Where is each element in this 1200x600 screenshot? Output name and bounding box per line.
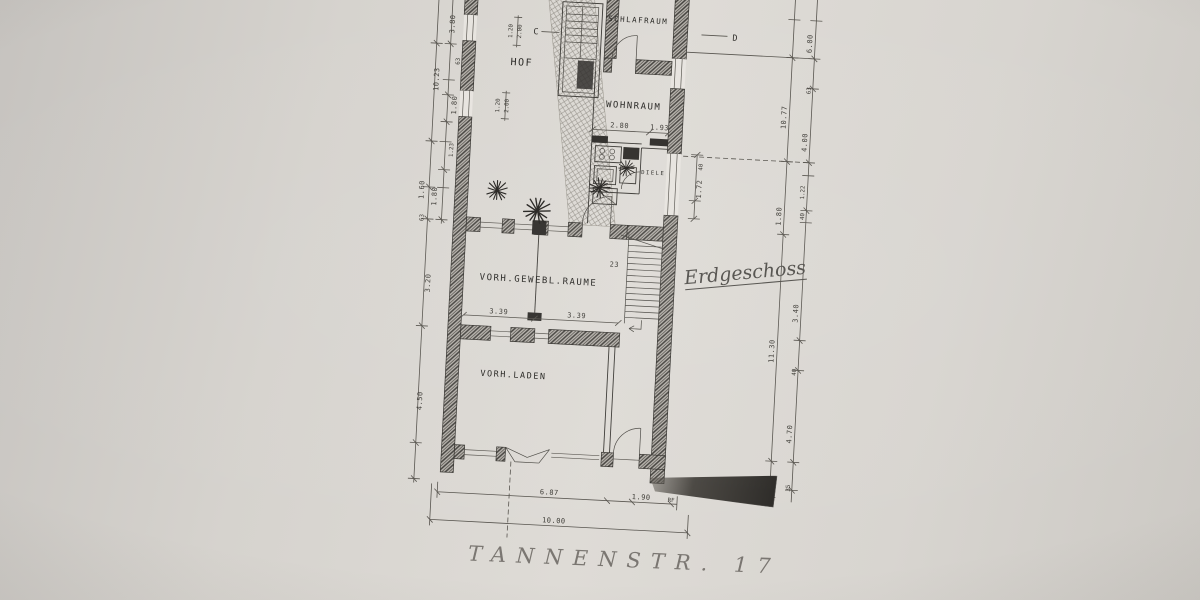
- window-dim-b: 1.72: [695, 179, 704, 198]
- wohnraum-label: WOHNRAUM: [606, 100, 662, 113]
- staircase-23: [616, 233, 665, 333]
- left-boundary-wall: [440, 0, 479, 473]
- left-dim-c: 63: [456, 57, 462, 65]
- gewerbl-dim-b: 3.39: [567, 311, 586, 320]
- wohnraum-dim-b: 1.93: [650, 123, 669, 132]
- left-dim-e: 1.23: [449, 142, 456, 157]
- window-dim: 40 1.72: [688, 152, 706, 223]
- left-dim-b: 10.23: [432, 67, 441, 91]
- section-c-label: C: [533, 27, 539, 37]
- right-inner-dim-a: 10.77: [780, 105, 789, 129]
- right-outer-dim-g: 40: [792, 368, 798, 376]
- gate1-dim-b: 2.00: [517, 24, 524, 39]
- gewerbl-top-wall: [466, 217, 663, 241]
- laden-label: VORH.LADEN: [480, 369, 547, 382]
- hof-label: HOF: [510, 57, 533, 69]
- right-outer-dim-h: 4.70: [785, 425, 794, 444]
- right-dim-chain: 10.77 1.80 11.30 6.00 63 4.00 1.22 40 3.…: [663, 0, 824, 503]
- gewerbl-label: VORH.GEWEBL.RAUME: [479, 273, 597, 289]
- photographed-floorplan: SCHLAFRAUM WOHNRAUM DIELE HOF VORH.GEWEB…: [0, 0, 1200, 600]
- diele-label: DIELE: [641, 170, 665, 177]
- gewerbl-laden-wall: [460, 325, 620, 347]
- section-d-label: D: [732, 34, 738, 44]
- left-dim-g: 1.80: [430, 187, 439, 206]
- right-outer-dim-b: 63: [807, 87, 813, 95]
- stair-step-count: 23: [609, 260, 619, 268]
- bottom-dim-c: RF: [667, 498, 675, 504]
- right-outer-dim-e: 40: [800, 212, 806, 220]
- left-dim-h: 63: [419, 213, 425, 221]
- gewerbl-dim-a: 3.39: [489, 307, 508, 316]
- gate1-dim-a: 1.20: [508, 23, 515, 38]
- right-outer-dim-f: 3.40: [792, 304, 801, 323]
- laden-room: [604, 347, 616, 453]
- left-dim-j: 4.50: [415, 391, 424, 410]
- schlafraum-walls: [603, 0, 675, 75]
- bottom-dim-total: 10.00: [542, 516, 566, 525]
- right-outer-dim-d: 1.22: [800, 185, 807, 199]
- right-outer-dim-i: 35: [786, 484, 792, 492]
- left-dim-a: 3.80: [448, 14, 457, 33]
- gate2-dim-b: 2.00: [504, 98, 511, 113]
- gate2-dim-a: 1.20: [495, 98, 502, 113]
- bottom-facade: [454, 419, 667, 470]
- bottom-dim-a: 6.87: [540, 488, 559, 497]
- window-dim-a: 40: [698, 163, 704, 171]
- bottom-dim-b: 1.90: [632, 493, 651, 502]
- right-outer-dim-c: 4.00: [801, 133, 810, 152]
- right-inner-dim-c: 11.30: [767, 339, 776, 363]
- left-dim-i: 3.20: [424, 273, 433, 292]
- wohnraum-dim-a: 2.80: [610, 121, 629, 130]
- left-dim-f: 1.60: [418, 180, 427, 199]
- floorplan-drawing: SCHLAFRAUM WOHNRAUM DIELE HOF VORH.GEWEB…: [0, 0, 1200, 600]
- right-outer-dim-a: 6.00: [806, 34, 815, 53]
- left-dim-d: 1.80: [450, 96, 459, 115]
- right-inner-dim-b: 1.80: [775, 207, 784, 226]
